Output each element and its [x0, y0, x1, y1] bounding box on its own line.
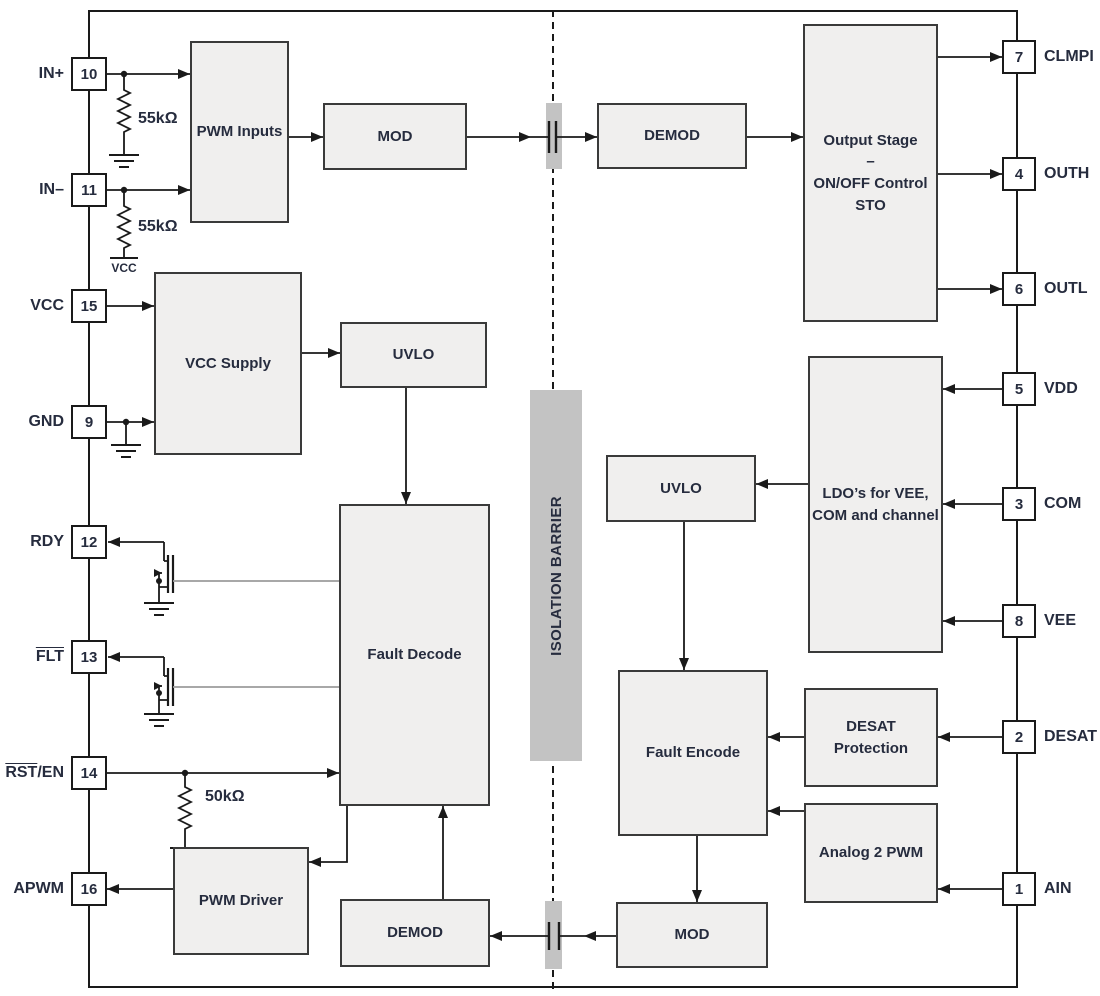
isolation-barrier-label: ISOLATION BARRIER — [548, 496, 565, 656]
mosfet-icon-rdy — [108, 542, 339, 615]
block-desat-protection: DESAT Protection — [804, 688, 938, 787]
resistor-label-50k: 50kΩ — [205, 788, 245, 806]
pin-label-in-plus: IN+ — [0, 64, 64, 84]
block-diagram-canvas: ISOLATION BARRIER PWM Inputs MOD DEMOD O… — [0, 0, 1100, 996]
pin-box-2: 2 — [1002, 720, 1036, 754]
resistor-icon-in-plus — [109, 74, 139, 167]
block-label: Analog 2 PWM — [819, 842, 923, 864]
block-ldo: LDO’s for VEE, COM and channel — [808, 356, 943, 653]
pin-box-9: 9 — [71, 405, 107, 439]
pin-label-clmpi: CLMPI — [1044, 47, 1094, 67]
pin-number: 2 — [1015, 729, 1023, 746]
pin-number: 1 — [1015, 881, 1023, 898]
vcc-rail-label: VCC — [104, 261, 144, 275]
pin-box-6: 6 — [1002, 272, 1036, 306]
resistor-label-55k-top: 55kΩ — [138, 110, 178, 128]
pin-box-16: 16 — [71, 872, 107, 906]
pin-number: 7 — [1015, 49, 1023, 66]
block-label: MOD — [675, 924, 710, 946]
capacitor-icon-bottom — [545, 901, 562, 969]
block-demod-top: DEMOD — [597, 103, 747, 169]
block-pwm-inputs: PWM Inputs — [190, 41, 289, 223]
pin-number: 8 — [1015, 613, 1023, 630]
block-uvlo-left: UVLO — [340, 322, 487, 388]
pin-number: 16 — [81, 881, 98, 898]
block-label: Fault Decode — [367, 644, 461, 666]
pin-label-text: RST — [5, 764, 37, 781]
block-label: – — [813, 151, 927, 173]
pin-number: 11 — [81, 182, 97, 199]
pin-box-4: 4 — [1002, 157, 1036, 191]
block-label: MOD — [378, 126, 413, 148]
block-output-stage: Output Stage – ON/OFF Control STO — [803, 24, 938, 322]
block-label: COM and channel — [812, 505, 939, 527]
pin-number: 14 — [81, 765, 98, 782]
pin-box-7: 7 — [1002, 40, 1036, 74]
pin-number: 4 — [1015, 166, 1023, 183]
pin-box-13: 13 — [71, 640, 107, 674]
pin-box-5: 5 — [1002, 372, 1036, 406]
pin-label-gnd: GND — [0, 412, 64, 432]
block-label: LDO’s for VEE, — [812, 483, 939, 505]
mosfet-icon-flt — [108, 657, 339, 726]
block-label: VCC Supply — [185, 353, 271, 375]
pin-box-12: 12 — [71, 525, 107, 559]
pin-label-com: COM — [1044, 494, 1081, 514]
pin-label-apwm: APWM — [0, 879, 64, 899]
pin-label-flt: FLT — [0, 647, 64, 667]
block-label: DEMOD — [387, 922, 443, 944]
isolation-barrier: ISOLATION BARRIER — [530, 390, 582, 761]
ground-icon-gnd-pin — [111, 422, 141, 457]
pin-box-15: 15 — [71, 289, 107, 323]
resistor-icon-in-minus — [110, 190, 138, 258]
block-label: DEMOD — [644, 125, 700, 147]
block-analog-2-pwm: Analog 2 PWM — [804, 803, 938, 903]
block-label: UVLO — [393, 344, 435, 366]
pin-label-desat: DESAT — [1044, 727, 1097, 747]
block-vcc-supply: VCC Supply — [154, 272, 302, 455]
pin-label-outh: OUTH — [1044, 164, 1089, 184]
pin-box-3: 3 — [1002, 487, 1036, 521]
block-fault-decode: Fault Decode — [339, 504, 490, 806]
pin-label-vcc: VCC — [0, 296, 64, 316]
pin-label-vdd: VDD — [1044, 379, 1078, 399]
block-label: Output Stage — [813, 130, 927, 152]
pin-number: 6 — [1015, 281, 1023, 298]
block-label: Fault Encode — [646, 742, 740, 764]
block-label: DESAT Protection — [808, 716, 934, 760]
pin-label-text: /EN — [37, 764, 64, 781]
pin-box-8: 8 — [1002, 604, 1036, 638]
pin-number: 15 — [81, 298, 98, 315]
pin-box-10: 10 — [71, 57, 107, 91]
pin-number: 9 — [85, 414, 93, 431]
pin-number: 12 — [81, 534, 98, 551]
pin-number: 13 — [81, 649, 98, 666]
resistor-label-55k-bottom: 55kΩ — [138, 218, 178, 236]
block-demod-bottom: DEMOD — [340, 899, 490, 967]
block-label: ON/OFF Control — [813, 173, 927, 195]
block-mod-bottom: MOD — [616, 902, 768, 968]
pin-box-1: 1 — [1002, 872, 1036, 906]
block-mod-top: MOD — [323, 103, 467, 170]
pin-label-rst-en: RST/EN — [0, 763, 64, 783]
pin-label-vee: VEE — [1044, 611, 1076, 631]
block-label: PWM Inputs — [197, 121, 283, 143]
pin-box-11: 11 — [71, 173, 107, 207]
pin-box-14: 14 — [71, 756, 107, 790]
pin-label-text: FLT — [36, 648, 64, 665]
pin-number: 10 — [81, 66, 98, 83]
block-fault-encode: Fault Encode — [618, 670, 768, 836]
pin-label-rdy: RDY — [0, 532, 64, 552]
capacitor-icon-top — [546, 103, 562, 169]
block-pwm-driver: PWM Driver — [173, 847, 309, 955]
block-label: STO — [813, 195, 927, 217]
pin-label-outl: OUTL — [1044, 279, 1088, 299]
pin-label-ain: AIN — [1044, 879, 1072, 899]
pin-number: 5 — [1015, 381, 1023, 398]
block-label: UVLO — [660, 478, 702, 500]
block-uvlo-right: UVLO — [606, 455, 756, 522]
block-label: PWM Driver — [199, 890, 283, 912]
pin-label-in-minus: IN– — [0, 180, 64, 200]
pin-number: 3 — [1015, 496, 1023, 513]
